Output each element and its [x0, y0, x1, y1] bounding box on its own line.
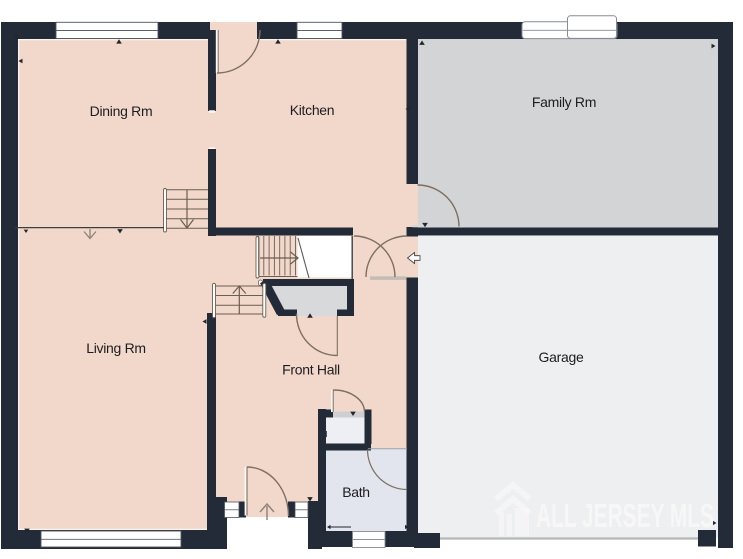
svg-text:Family Rm: Family Rm: [532, 94, 596, 110]
svg-text:Garage: Garage: [539, 349, 584, 365]
svg-text:Bath: Bath: [342, 484, 370, 500]
svg-text:ALL JERSEY MLS: ALL JERSEY MLS: [536, 497, 714, 534]
svg-text:Dining Rm: Dining Rm: [90, 103, 153, 119]
svg-text:Kitchen: Kitchen: [290, 102, 335, 118]
svg-text:Front Hall: Front Hall: [282, 362, 340, 378]
svg-text:Living Rm: Living Rm: [86, 340, 146, 356]
